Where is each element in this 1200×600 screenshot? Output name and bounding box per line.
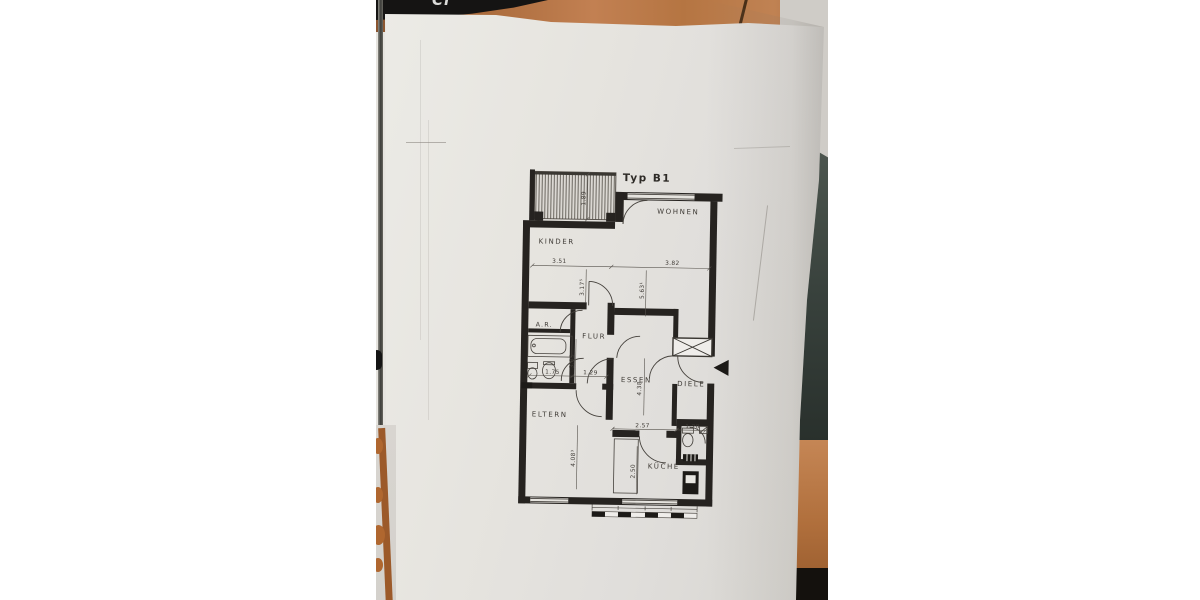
dim-kueche-width: 2.57 bbox=[635, 423, 650, 429]
photo: Ci bbox=[376, 0, 828, 600]
dim-bath-width: 1.75 bbox=[545, 370, 560, 376]
dim-essen-depth: 4.38 bbox=[637, 381, 643, 396]
plan-title: Typ B1 bbox=[623, 172, 671, 185]
room-label-ar: A.R. bbox=[536, 320, 553, 328]
room-label-kinder: KINDER bbox=[539, 238, 575, 247]
dim-balcony-depth: 1.89 bbox=[581, 191, 587, 206]
dim-kueche-depth: 2.50 bbox=[631, 464, 637, 479]
scan-streak bbox=[420, 40, 421, 340]
dim-eltern-depth: 4.08³ bbox=[570, 449, 577, 467]
dim-kinder-depth: 3.17⁵ bbox=[579, 278, 586, 296]
scan-streak bbox=[428, 120, 429, 420]
photo-of-floorplan-scene: Ci bbox=[0, 0, 1200, 600]
entrance-arrow-icon bbox=[713, 360, 728, 376]
dim-wohnen-depth: 5.63¹ bbox=[639, 282, 646, 299]
sheet-protector-edge bbox=[376, 0, 389, 600]
dim-flur-width: 1.29 bbox=[583, 370, 598, 376]
scale-bar bbox=[592, 504, 697, 518]
shaft-symbol bbox=[673, 338, 712, 357]
room-label-flur: FLUR bbox=[582, 332, 606, 340]
dim-bath-depth: 3.85 bbox=[570, 354, 576, 369]
room-label-eltern: ELTERN bbox=[532, 410, 568, 419]
desk-object-label: Ci bbox=[432, 0, 450, 9]
room-label-kueche: KÜCHE bbox=[648, 461, 680, 471]
dim-wohnen-width: 3.82 bbox=[665, 261, 680, 267]
floorplan-drawing: Typ B1 bbox=[505, 156, 741, 528]
dim-kinder-width: 3.51 bbox=[552, 259, 567, 265]
toilet-icon bbox=[527, 362, 537, 379]
balcony bbox=[529, 169, 616, 221]
bathtub-icon bbox=[528, 335, 572, 357]
room-label-diele: DIELE bbox=[677, 380, 705, 388]
appliance-window bbox=[686, 475, 696, 483]
room-label-wohnen: WOHNEN bbox=[657, 208, 699, 217]
floorplan-svg: Typ B1 bbox=[505, 156, 741, 528]
dim-wc-width: 1.20 bbox=[685, 424, 700, 430]
bath-radiator-icon bbox=[521, 382, 532, 388]
wc-toilet-icon bbox=[682, 428, 693, 447]
binder-clip bbox=[376, 350, 382, 370]
paper-crease bbox=[406, 142, 446, 143]
